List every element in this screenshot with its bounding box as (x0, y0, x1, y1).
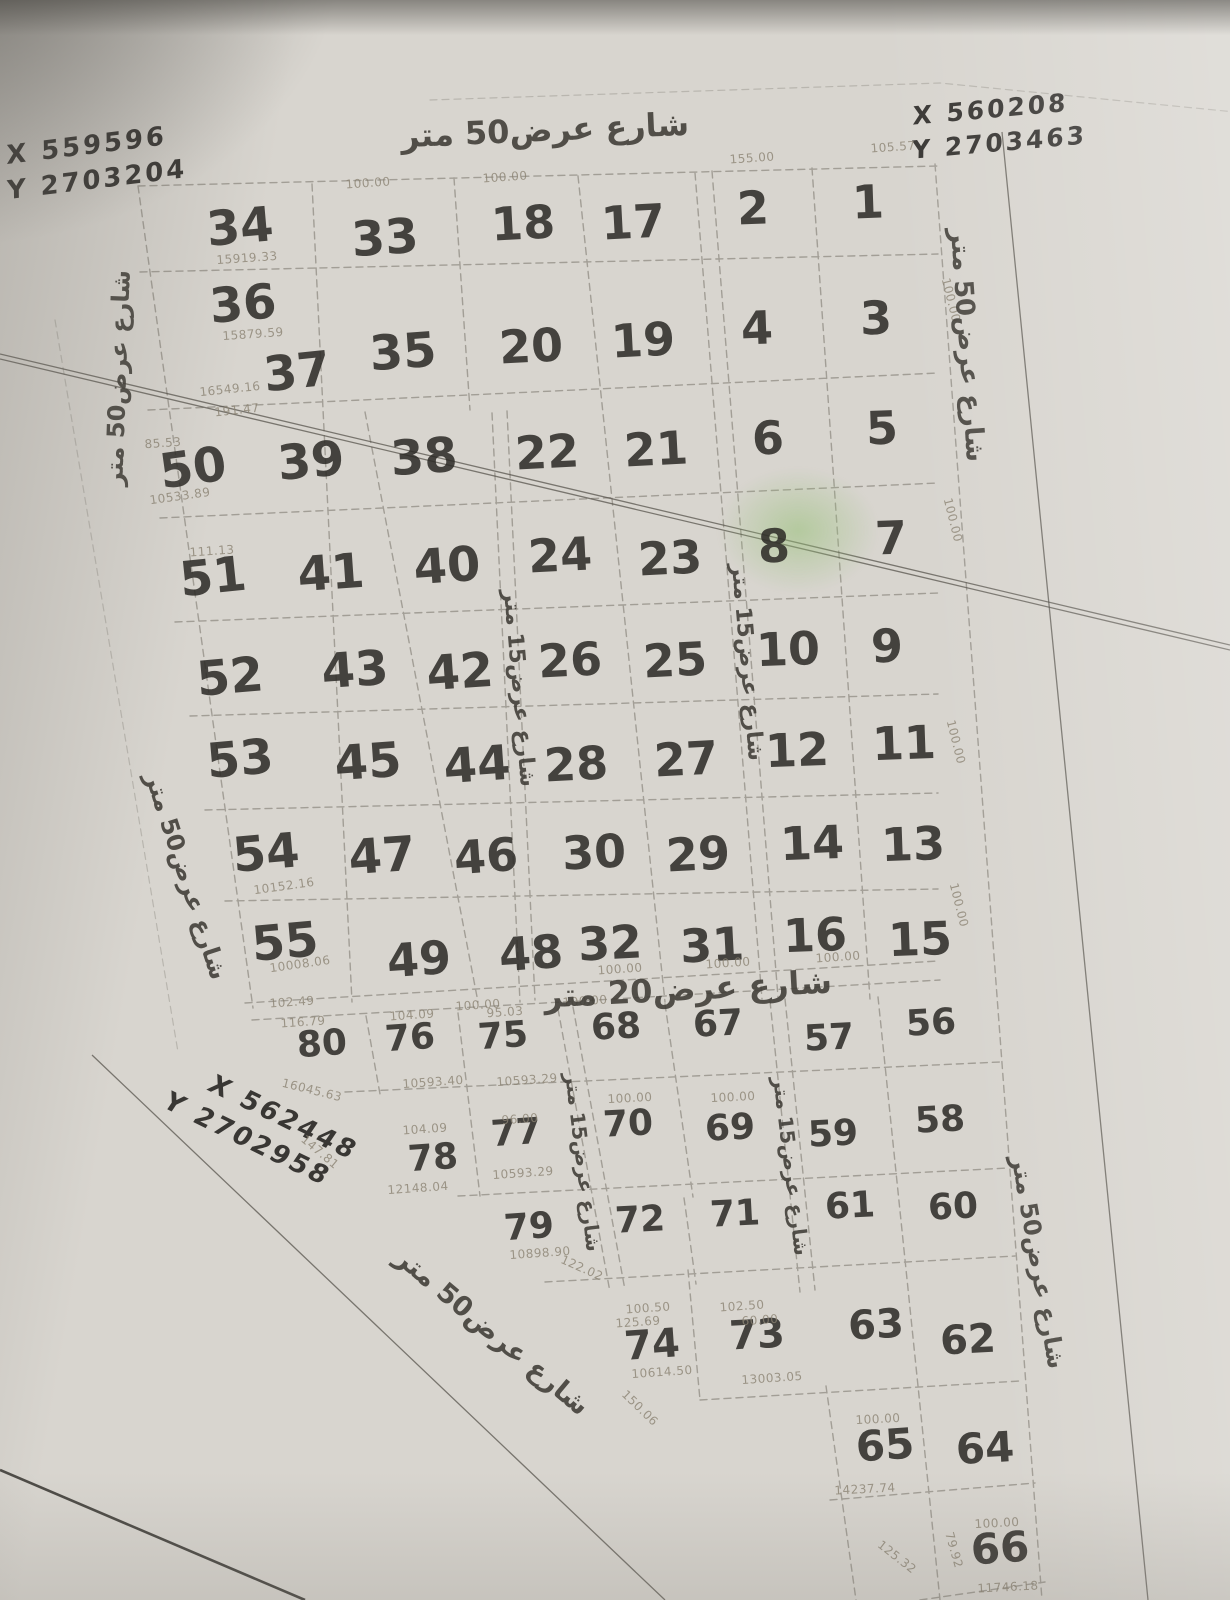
plot-number-17: 17 (600, 193, 667, 250)
plot-number-12: 12 (764, 722, 830, 778)
plot-number-49: 49 (385, 930, 453, 988)
plot-number-37: 37 (261, 341, 333, 404)
dimension-label: 100.00 (710, 1089, 756, 1105)
dimension-label: 100.00 (974, 1515, 1020, 1531)
plot-number-72: 72 (614, 1198, 666, 1242)
plot-number-30: 30 (561, 823, 628, 880)
plot-number-2: 2 (736, 180, 770, 235)
paper-sheet: X 559596 Y 2703204 X 560208 Y 2703463 X … (0, 0, 1230, 1600)
plot-number-63: 63 (847, 1301, 905, 1350)
plot-number-60: 60 (927, 1185, 979, 1229)
plot-number-57: 57 (803, 1016, 855, 1060)
plot-number-8: 8 (757, 518, 791, 573)
plot-number-46: 46 (452, 827, 520, 885)
plot-number-40: 40 (412, 536, 483, 597)
plot-number-79: 79 (503, 1205, 556, 1249)
plot-number-22: 22 (514, 423, 581, 480)
plot-number-67: 67 (692, 1002, 744, 1046)
plot-number-43: 43 (320, 640, 391, 701)
plot-number-39: 39 (275, 430, 346, 492)
plot-number-3: 3 (859, 290, 893, 345)
dimension-label: 100.00 (855, 1411, 901, 1427)
dimension-label: 100.00 (607, 1090, 653, 1106)
plot-number-13: 13 (880, 816, 946, 872)
scanned-subdivision-plan: { "page": { "background": "#d8d5cf", "in… (0, 0, 1230, 1600)
dimension-label: 85.53 (144, 435, 182, 452)
plot-number-7: 7 (874, 510, 908, 565)
plot-number-47: 47 (347, 826, 418, 887)
plot-number-24: 24 (527, 526, 594, 583)
plot-number-62: 62 (939, 1316, 997, 1365)
plot-number-5: 5 (865, 400, 899, 455)
plot-number-1: 1 (851, 174, 885, 229)
plot-number-53: 53 (204, 728, 275, 790)
plot-number-78: 78 (407, 1136, 460, 1180)
plot-number-58: 58 (914, 1098, 966, 1142)
plot-number-14: 14 (779, 815, 845, 871)
plot-number-41: 41 (296, 543, 367, 604)
plot-number-71: 71 (709, 1192, 761, 1236)
plot-number-26: 26 (537, 631, 604, 688)
plot-number-21: 21 (623, 420, 690, 477)
plot-number-42: 42 (425, 642, 496, 703)
plot-number-4: 4 (740, 300, 774, 355)
plot-number-61: 61 (824, 1184, 876, 1228)
dimension-label: 95.03 (486, 1004, 524, 1021)
plot-number-52: 52 (194, 646, 265, 708)
plot-number-11: 11 (871, 715, 937, 771)
plot-number-25: 25 (642, 631, 709, 688)
bottom-left-road-edge (0, 1470, 305, 1600)
plot-number-64: 64 (955, 1422, 1016, 1474)
plot-number-48: 48 (497, 924, 565, 982)
plot-number-56: 56 (905, 1001, 957, 1045)
plot-number-44: 44 (442, 735, 513, 796)
plot-number-70: 70 (602, 1102, 654, 1146)
plot-number-19: 19 (610, 311, 677, 368)
plot-number-28: 28 (543, 735, 610, 792)
plot-number-18: 18 (490, 194, 557, 251)
plot-number-33: 33 (350, 208, 421, 269)
plot-number-29: 29 (665, 825, 732, 882)
plot-number-38: 38 (389, 427, 460, 488)
plot-number-6: 6 (751, 410, 785, 465)
plot-number-45: 45 (333, 732, 404, 793)
plot-number-27: 27 (653, 730, 720, 787)
plot-number-75: 75 (477, 1014, 530, 1058)
plot-number-69: 69 (704, 1106, 756, 1150)
plot-number-15: 15 (887, 911, 953, 967)
dimension-label: 96.00 (501, 1111, 539, 1128)
dimension-label: 60.00 (741, 1312, 779, 1329)
plot-number-9: 9 (870, 618, 904, 673)
plot-number-59: 59 (807, 1112, 859, 1156)
plot-number-23: 23 (637, 529, 704, 586)
plot-number-10: 10 (755, 621, 821, 677)
plot-number-34: 34 (204, 196, 275, 258)
plot-number-20: 20 (498, 317, 565, 374)
plot-number-54: 54 (230, 822, 301, 884)
plot-number-35: 35 (368, 322, 439, 383)
